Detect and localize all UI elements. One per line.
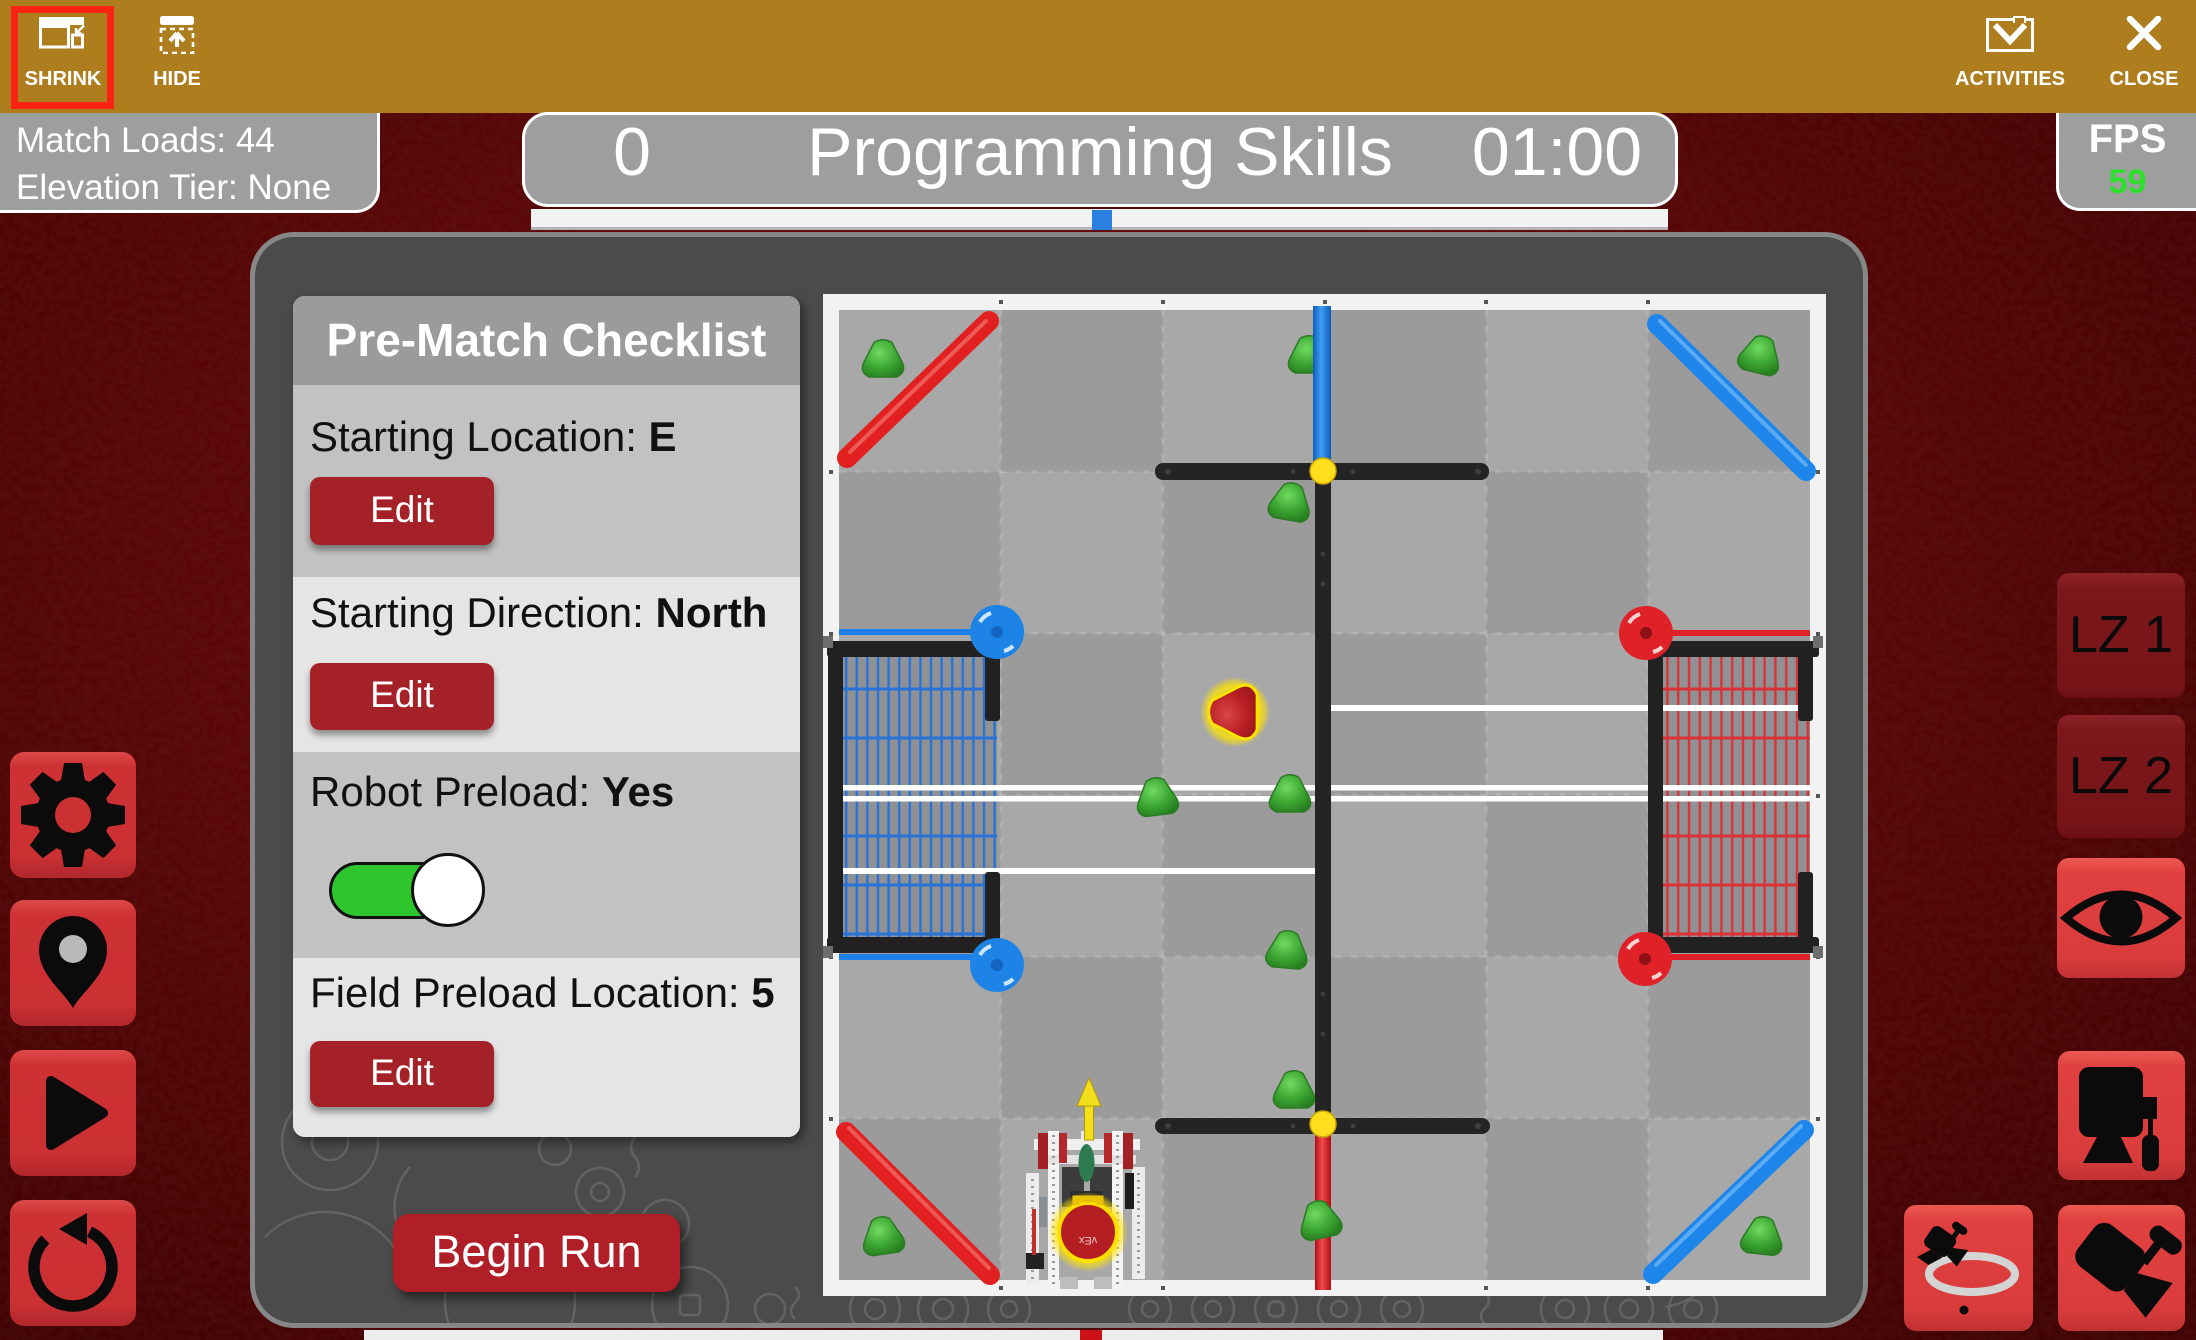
svg-text:vEx: vEx (1078, 1234, 1097, 1246)
